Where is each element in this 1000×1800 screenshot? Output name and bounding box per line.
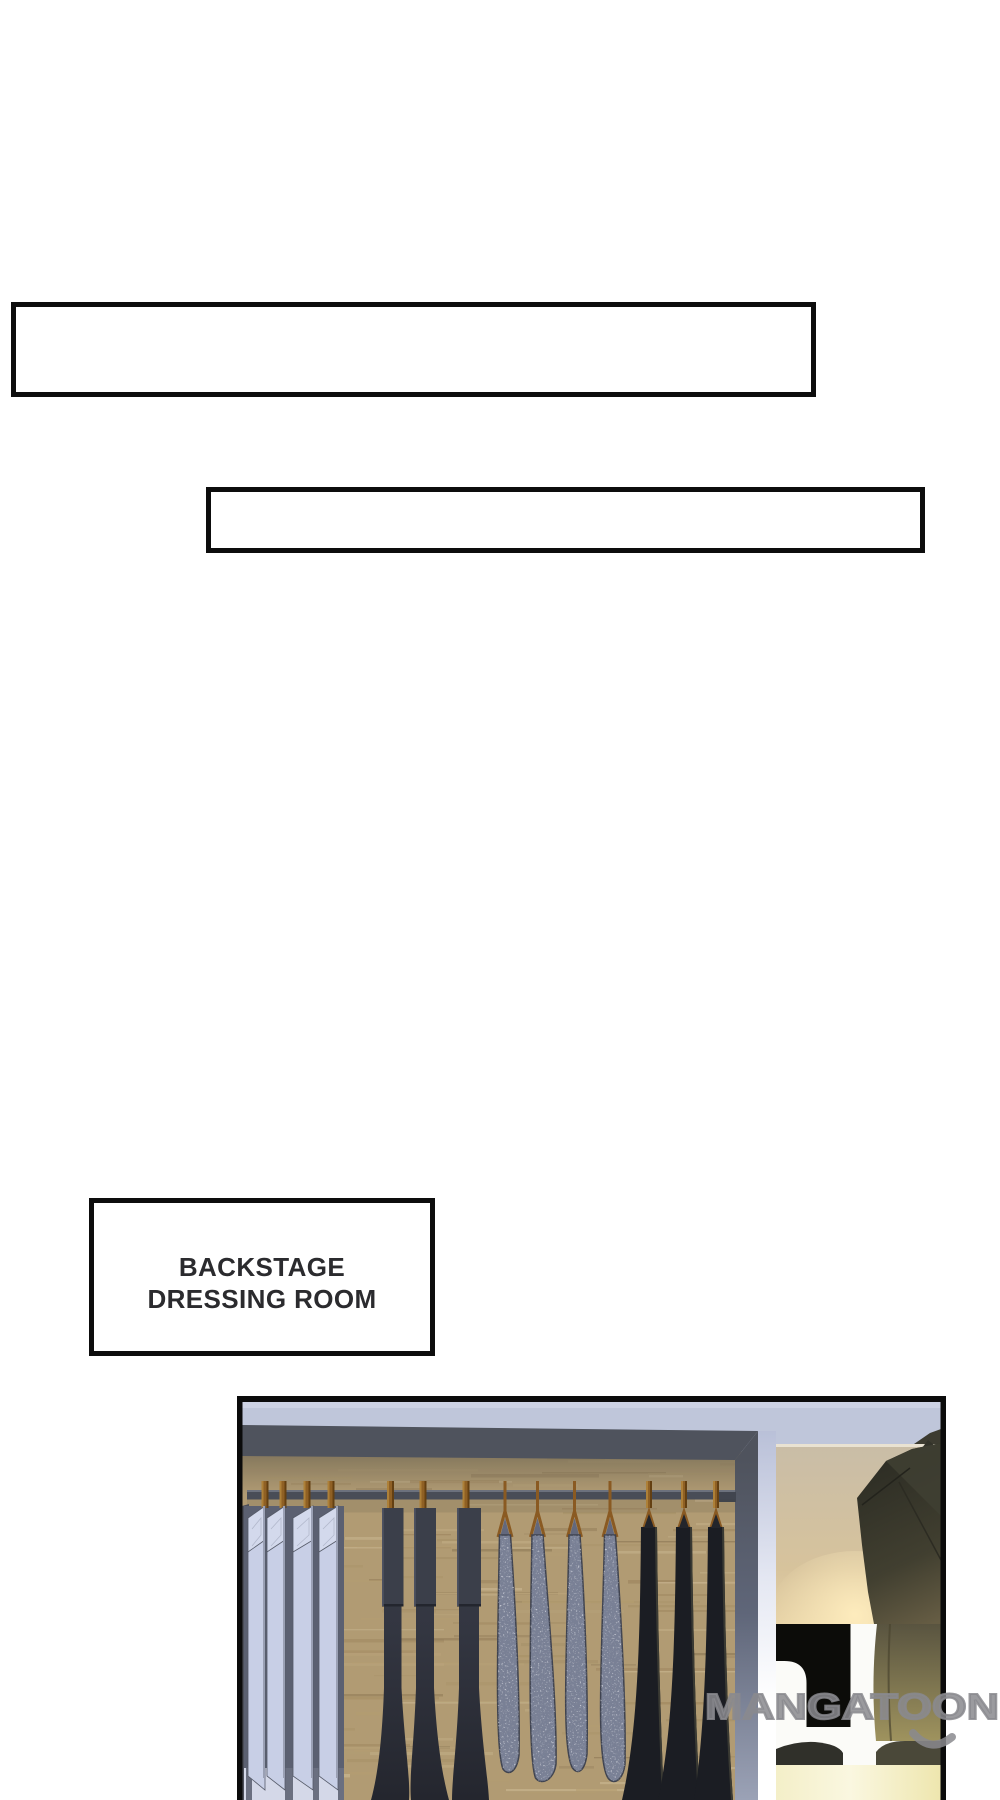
svg-text:MANGATOON: MANGATOON <box>705 1686 999 1727</box>
